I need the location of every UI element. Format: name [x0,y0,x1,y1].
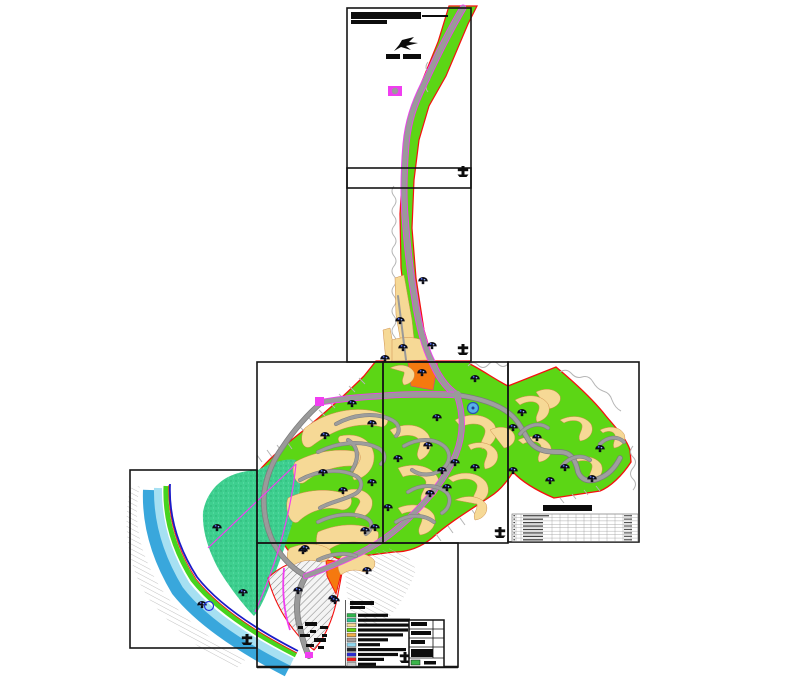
sheet-title-text [351,12,448,24]
legend-swatch [347,658,356,662]
drawing-sheet [0,0,800,679]
legend-label-bar [358,628,408,631]
legend-swatch [347,628,356,632]
title-block-logo [411,649,433,657]
legend-swatch [347,614,356,618]
survey-cross-icon [495,527,506,538]
legend-swatch [347,623,356,627]
legend-swatch [347,618,356,622]
legend-label-bar [358,658,384,661]
legend-label-bar [358,648,406,651]
legend-swatch [347,653,356,657]
legend-label-bar [358,643,380,646]
land-use-table [512,505,638,542]
tree-icon [418,277,428,284]
map-content [127,6,636,670]
legend-label-bar [358,638,388,641]
title-block [409,620,444,667]
legend-label-bar [358,653,398,656]
legend-title-bar [350,601,374,605]
legend-label-bar [358,614,388,617]
survey-cross-icon [458,344,469,355]
title-block-swatch [411,660,420,665]
table-title-bar [543,505,592,511]
legend-swatch [347,633,356,637]
site-plan-canvas [0,0,800,679]
legend-label-bar [358,619,410,622]
north-arrow-icon [386,37,421,59]
legend-label-bar [358,633,403,636]
road-network [264,8,624,656]
legend-label-bar [358,663,376,666]
legend-swatch [347,638,356,642]
pond [468,403,479,414]
legend-swatch [347,648,356,652]
legend-swatch [347,643,356,647]
legend-label-bar [358,624,413,627]
legend-title-bar-2 [350,606,365,609]
legend-swatch [347,663,356,667]
